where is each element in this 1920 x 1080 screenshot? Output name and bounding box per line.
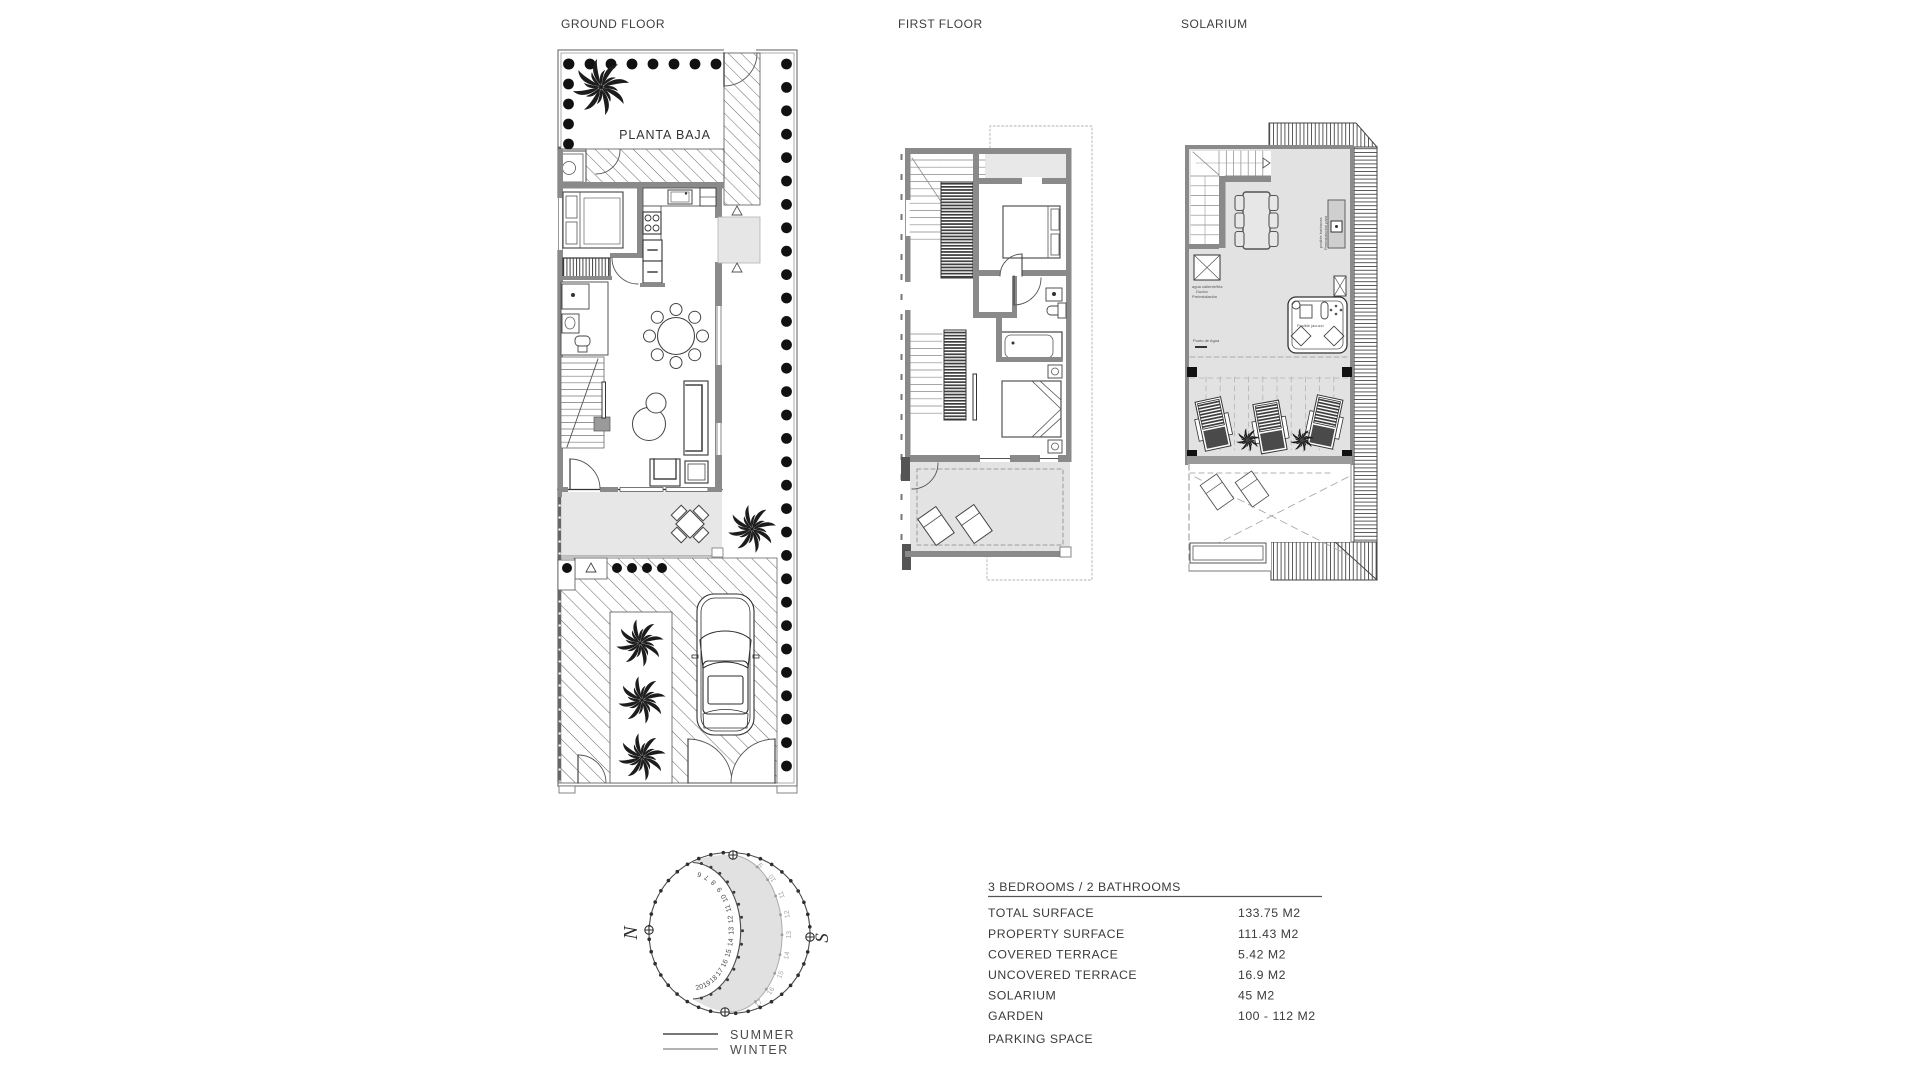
svg-text:16.9 M2: 16.9 M2 xyxy=(1238,968,1286,982)
svg-text:SOLARIUM: SOLARIUM xyxy=(988,989,1056,1003)
svg-text:UNCOVERED TERRACE: UNCOVERED TERRACE xyxy=(988,968,1137,982)
svg-text:COVERED TERRACE: COVERED TERRACE xyxy=(988,948,1118,962)
svg-text:111.43 M2: 111.43 M2 xyxy=(1238,927,1299,941)
svg-text:TOTAL SURFACE: TOTAL SURFACE xyxy=(988,906,1094,920)
svg-text:SUMMER: SUMMER xyxy=(730,1028,795,1042)
svg-text:3 BEDROOMS / 2 BATHROOMS: 3 BEDROOMS / 2 BATHROOMS xyxy=(988,880,1181,894)
svg-text:Punto de Agua: Punto de Agua xyxy=(1193,338,1220,343)
svg-text:GROUND FLOOR: GROUND FLOOR xyxy=(561,17,665,31)
svg-text:Preinstalación: Preinstalación xyxy=(1192,294,1217,299)
svg-text:12: 12 xyxy=(784,910,792,919)
svg-text:14: 14 xyxy=(727,938,735,947)
svg-text:PROPERTY SURFACE: PROPERTY SURFACE xyxy=(988,927,1125,941)
svg-text:13: 13 xyxy=(729,927,736,935)
svg-text:14: 14 xyxy=(783,951,791,960)
svg-text:Preinstalación para: Preinstalación para xyxy=(1323,215,1328,250)
svg-text:Posible jacuzzi: Posible jacuzzi xyxy=(1297,323,1324,328)
svg-text:100 - 112 M2: 100 - 112 M2 xyxy=(1238,1009,1316,1023)
svg-text:SOLARIUM: SOLARIUM xyxy=(1181,17,1248,31)
svg-text:S: S xyxy=(812,933,833,943)
svg-text:PLANTA BAJA: PLANTA BAJA xyxy=(619,128,711,142)
svg-text:N: N xyxy=(620,925,642,941)
svg-text:45 M2: 45 M2 xyxy=(1238,989,1275,1003)
svg-text:FIRST FLOOR: FIRST FLOOR xyxy=(898,17,983,31)
svg-text:WINTER: WINTER xyxy=(730,1043,789,1057)
svg-text:133.75 M2: 133.75 M2 xyxy=(1238,906,1301,920)
svg-text:GARDEN: GARDEN xyxy=(988,1009,1044,1023)
svg-text:12: 12 xyxy=(727,915,735,924)
svg-text:13: 13 xyxy=(786,931,793,939)
svg-text:5.42 M2: 5.42 M2 xyxy=(1238,948,1286,962)
svg-text:PARKING SPACE: PARKING SPACE xyxy=(988,1032,1093,1046)
